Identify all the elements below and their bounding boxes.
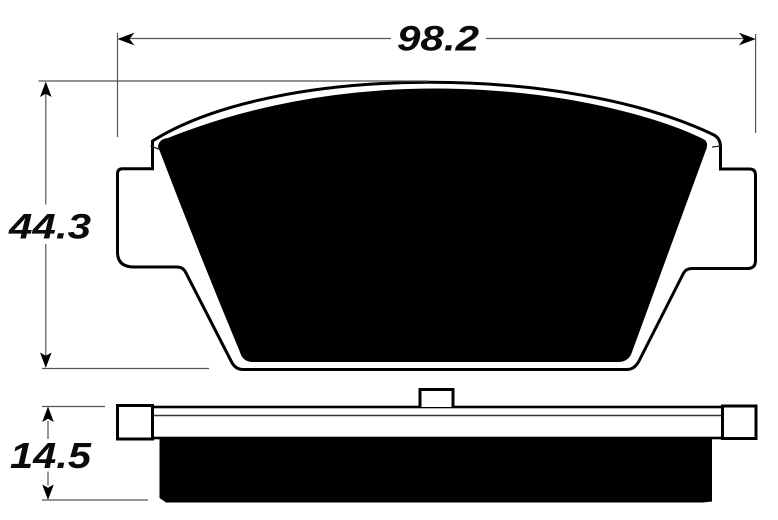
- svg-text:14.5: 14.5: [10, 435, 92, 476]
- svg-text:98.2: 98.2: [397, 20, 480, 59]
- svg-text:44.3: 44.3: [8, 208, 92, 247]
